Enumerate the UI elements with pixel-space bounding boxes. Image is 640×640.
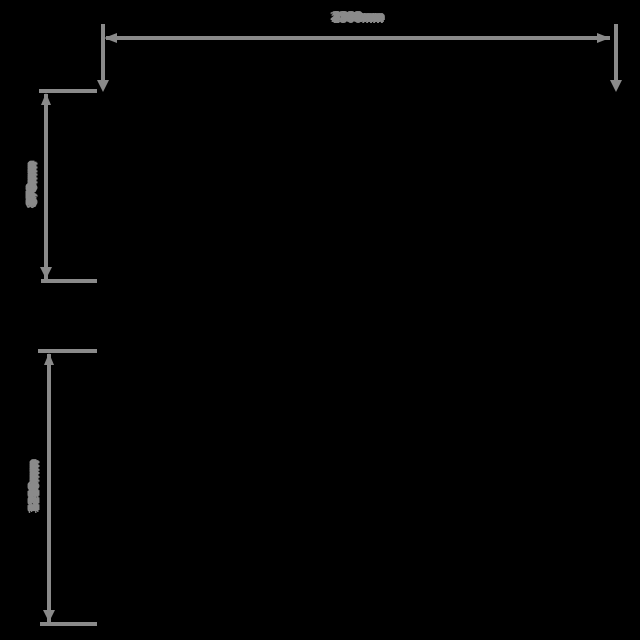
arrow-right-icon <box>597 33 610 43</box>
arrow-down-icon <box>43 610 55 622</box>
lower-left-height-label: 1210mm <box>29 462 40 513</box>
upper-dim-bottom-extension-line <box>41 279 97 283</box>
arrow-left-icon <box>104 33 117 43</box>
dimension-figure: 2300mm 870mm 1210mm <box>0 0 640 640</box>
arrow-down-icon <box>97 80 109 92</box>
arrow-down-icon <box>40 267 52 279</box>
lower-dim-bottom-extension-line <box>40 622 97 626</box>
arrow-down-icon <box>610 80 622 92</box>
top-dim-line <box>106 36 610 40</box>
top-dim-right-extension-line <box>614 24 618 84</box>
lower-dim-line <box>47 354 51 622</box>
arrow-up-icon <box>44 353 54 365</box>
top-width-label: 2300mm <box>332 12 383 23</box>
arrow-up-icon <box>41 93 51 105</box>
upper-dim-line <box>44 94 48 280</box>
upper-left-height-label: 870mm <box>27 163 38 206</box>
